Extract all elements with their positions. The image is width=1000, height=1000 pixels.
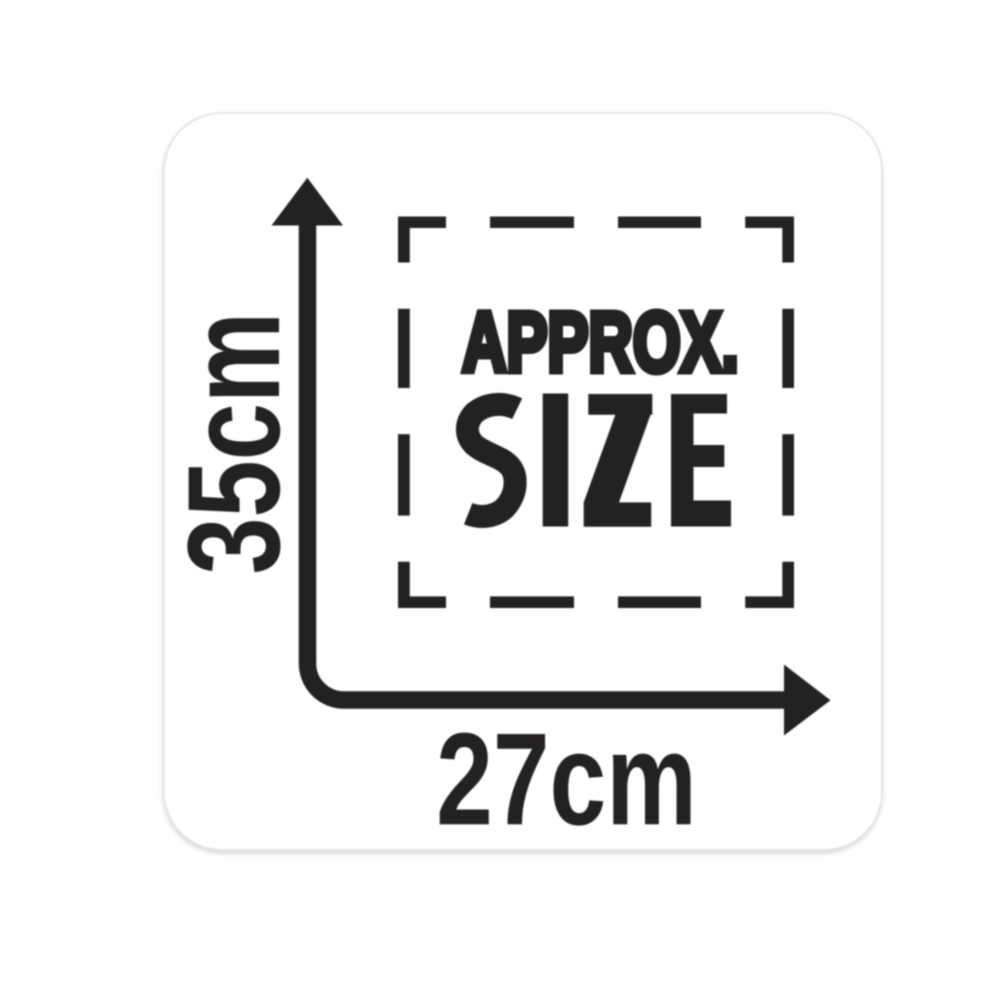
svg-text:27cm: 27cm bbox=[436, 706, 697, 852]
svg-text:APPROX.: APPROX. bbox=[462, 295, 739, 390]
svg-text:35cm: 35cm bbox=[160, 312, 307, 575]
